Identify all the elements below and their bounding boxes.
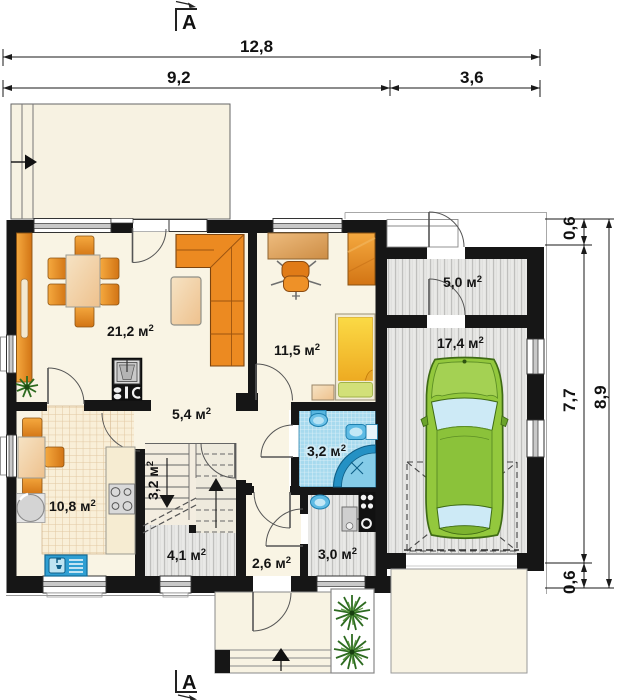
svg-text:0,6: 0,6 <box>560 216 579 240</box>
svg-text:17,4 м2: 17,4 м2 <box>437 335 484 351</box>
svg-text:10,8 м2: 10,8 м2 <box>49 498 96 514</box>
svg-text:0,6: 0,6 <box>560 570 579 594</box>
svg-text:3,2 м2: 3,2 м2 <box>307 443 346 459</box>
svg-text:8,9: 8,9 <box>591 385 610 409</box>
svg-text:4,1 м2: 4,1 м2 <box>167 547 206 563</box>
svg-text:9,2: 9,2 <box>167 68 191 87</box>
svg-text:3,2 м2: 3,2 м2 <box>145 461 161 500</box>
svg-text:11,5 м2: 11,5 м2 <box>274 342 320 358</box>
svg-text:3,0 м2: 3,0 м2 <box>318 546 357 562</box>
svg-text:21,2 м2: 21,2 м2 <box>107 323 154 339</box>
svg-text:12,8: 12,8 <box>240 37 273 56</box>
svg-text:7,7: 7,7 <box>560 388 579 412</box>
svg-text:2,6 м2: 2,6 м2 <box>252 555 291 571</box>
svg-text:A: A <box>182 672 196 694</box>
svg-text:5,0 м2: 5,0 м2 <box>443 274 482 290</box>
svg-text:5,4 м2: 5,4 м2 <box>172 406 211 422</box>
svg-text:A: A <box>182 12 196 34</box>
svg-text:3,6: 3,6 <box>460 68 484 87</box>
